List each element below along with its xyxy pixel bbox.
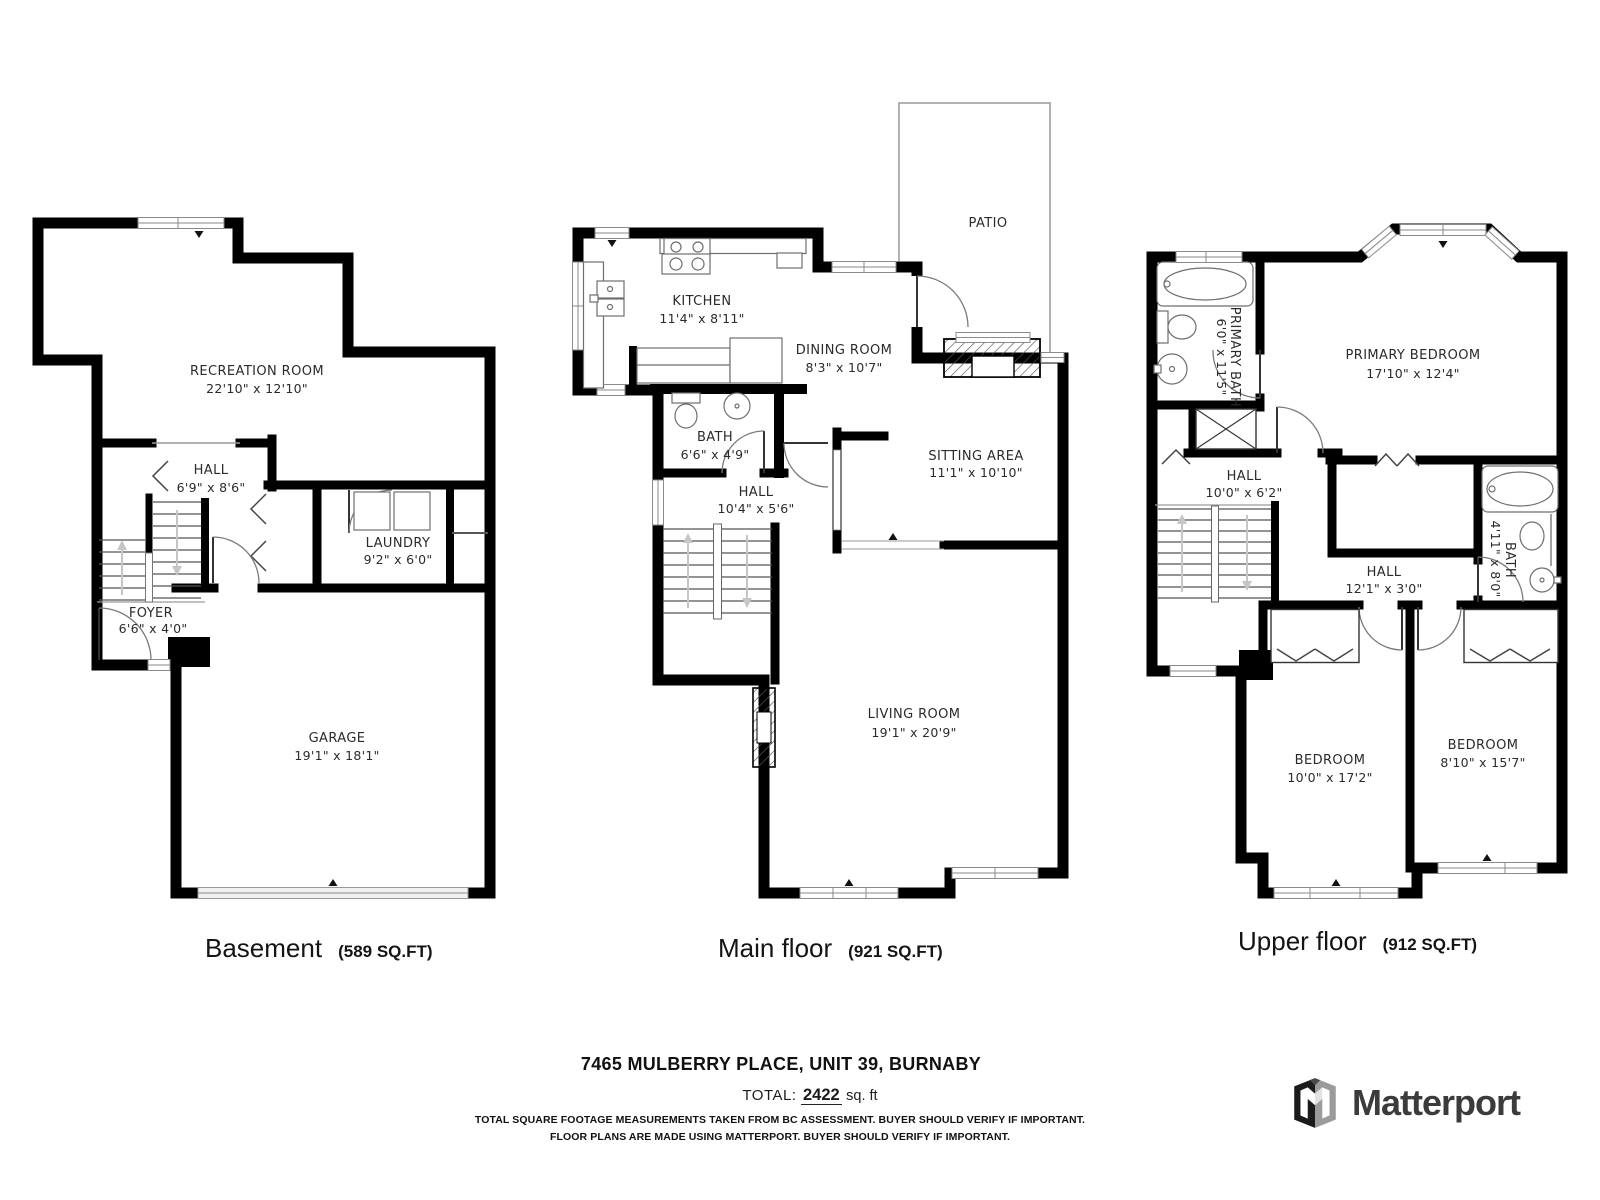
room-label-laundry: LAUNDRY bbox=[366, 536, 431, 551]
matterport-logo-icon bbox=[1288, 1076, 1342, 1130]
floor-area-text: (921 SQ.FT) bbox=[848, 942, 942, 962]
room-label-dining: DINING ROOM bbox=[796, 343, 892, 358]
floorplan-sheet: RECREATION ROOM 22'10" x 12'10" HALL 6'9… bbox=[0, 0, 1600, 1200]
total-label: TOTAL: bbox=[742, 1087, 796, 1104]
matterport-logo-text: Matterport bbox=[1352, 1082, 1520, 1124]
room-label-bath: BATH bbox=[1502, 542, 1517, 578]
linen-closet bbox=[1196, 409, 1256, 449]
room-label-primary-bedroom: PRIMARY BEDROOM bbox=[1346, 348, 1481, 363]
floorplan-upper: PRIMARY BEDROOM 17'10" x 12'4" PRIMARY B… bbox=[1125, 210, 1575, 910]
room-label-sitting: SITTING AREA bbox=[928, 449, 1023, 464]
room-dims-bedroom-left: 10'0" x 17'2" bbox=[1287, 770, 1372, 785]
patio-door bbox=[912, 276, 969, 327]
room-dims-hall: 6'9" x 8'6" bbox=[177, 480, 246, 495]
room-label-bedroom-left: BEDROOM bbox=[1295, 753, 1366, 768]
property-address: 7465 MULBERRY PLACE, UNIT 39, BURNABY bbox=[481, 1054, 1081, 1075]
floor-title-basement: Basement (589 SQ.FT) bbox=[205, 933, 433, 964]
room-dims-laundry: 9'2" x 6'0" bbox=[364, 552, 433, 567]
chimney bbox=[753, 688, 775, 767]
total-value: 2422 bbox=[801, 1086, 842, 1105]
floor-area-text: (912 SQ.FT) bbox=[1383, 935, 1477, 955]
room-dims-primary-bath: 6'0" x 11'5" bbox=[1214, 318, 1229, 395]
room-label-bath: BATH bbox=[697, 430, 733, 445]
disclaimer-line1: TOTAL SQUARE FOOTAGE MEASUREMENTS TAKEN … bbox=[430, 1114, 1130, 1126]
room-label-foyer: FOYER bbox=[129, 606, 173, 621]
floor-title-upper: Upper floor (912 SQ.FT) bbox=[1238, 926, 1477, 957]
floor-title-main: Main floor (921 SQ.FT) bbox=[718, 933, 943, 964]
matterport-logo: Matterport bbox=[1288, 1076, 1520, 1130]
room-label-patio: PATIO bbox=[969, 216, 1008, 231]
room-dims-hall: 10'4" x 5'6" bbox=[717, 501, 794, 516]
room-label-garage: GARAGE bbox=[309, 731, 366, 746]
room-label-hall: HALL bbox=[194, 463, 229, 478]
room-dims-bedroom-right: 8'10" x 15'7" bbox=[1440, 755, 1525, 770]
room-label-hall: HALL bbox=[739, 485, 774, 500]
total-unit: sq. ft bbox=[846, 1088, 877, 1104]
room-label-bedroom-right: BEDROOM bbox=[1448, 738, 1519, 753]
room-dims-recreation: 22'10" x 12'10" bbox=[206, 381, 308, 396]
disclaimer-line2: FLOOR PLANS ARE MADE USING MATTERPORT. B… bbox=[430, 1131, 1130, 1143]
room-dims-dining: 8'3" x 10'7" bbox=[805, 360, 882, 375]
room-label-hall-upper: HALL bbox=[1227, 469, 1262, 484]
room-label-hall-landing: HALL bbox=[1367, 565, 1402, 580]
room-dims-foyer: 6'6" x 4'0" bbox=[119, 621, 188, 636]
fireplace bbox=[944, 339, 1040, 377]
floorplan-basement: RECREATION ROOM 22'10" x 12'10" HALL 6'9… bbox=[25, 205, 515, 905]
room-dims-garage: 19'1" x 18'1" bbox=[294, 748, 379, 763]
room-dims-primary-bedroom: 17'10" x 12'4" bbox=[1366, 366, 1460, 381]
room-label-recreation: RECREATION ROOM bbox=[190, 364, 324, 379]
garage-door bbox=[198, 888, 468, 899]
floorplan-main: PATIO KITCHEN 11'4" x 8'11" DINING ROOM … bbox=[560, 95, 1090, 910]
room-label-kitchen: KITCHEN bbox=[672, 294, 731, 309]
room-dims-sitting: 11'1" x 10'10" bbox=[929, 465, 1023, 480]
floor-title-text: Basement bbox=[205, 933, 322, 964]
room-dims-bath: 6'6" x 4'9" bbox=[681, 447, 750, 462]
floor-title-text: Main floor bbox=[718, 933, 832, 964]
room-dims-bath: 4'11" x 8'0" bbox=[1488, 520, 1503, 597]
floor-area-text: (589 SQ.FT) bbox=[338, 942, 432, 962]
total-area: TOTAL: 2422 sq. ft bbox=[510, 1086, 1110, 1105]
room-dims-living: 19'1" x 20'9" bbox=[871, 725, 956, 740]
room-dims-hall-upper: 10'0" x 6'2" bbox=[1205, 485, 1282, 500]
room-dims-hall-landing: 12'1" x 3'0" bbox=[1345, 581, 1422, 596]
room-label-living: LIVING ROOM bbox=[868, 707, 961, 722]
room-dims-kitchen: 11'4" x 8'11" bbox=[659, 311, 744, 326]
floor-title-text: Upper floor bbox=[1238, 926, 1367, 957]
